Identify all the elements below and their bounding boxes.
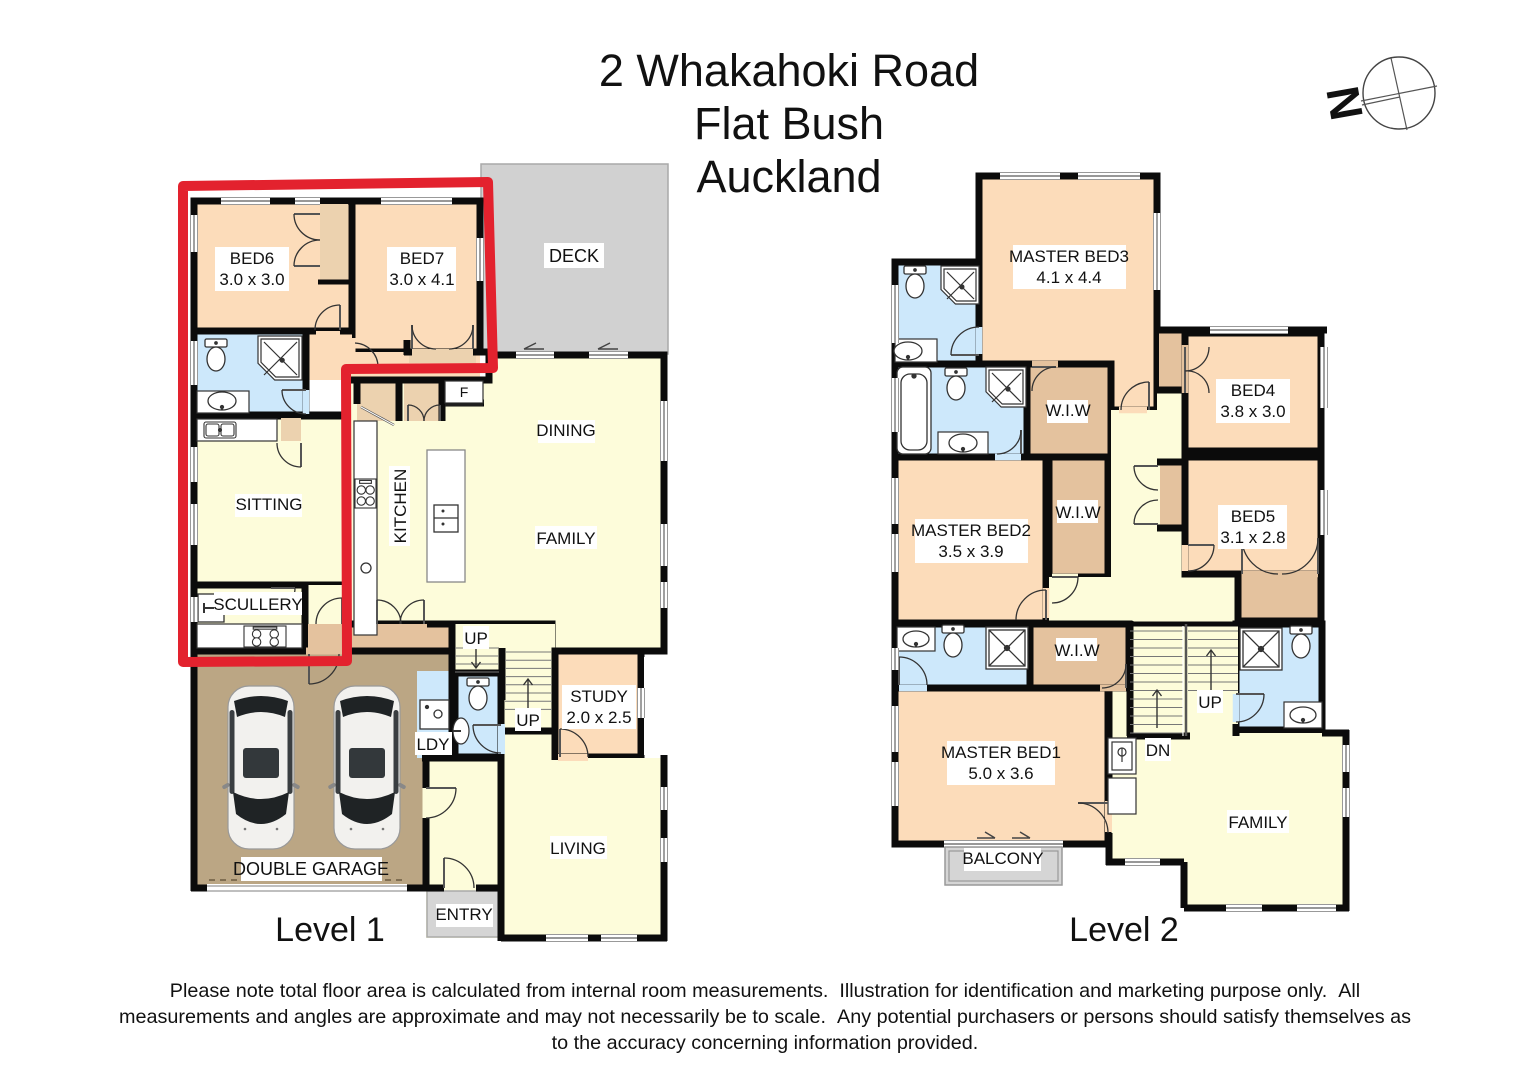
svg-text:KITCHEN: KITCHEN [391,469,410,544]
svg-text:BED7: BED7 [400,249,444,268]
svg-text:Auckland: Auckland [696,151,881,202]
svg-text:Please note total floor area i: Please note total floor area is calculat… [170,980,1360,1002]
svg-text:to the accuracy concerning inf: to the accuracy concerning information p… [552,1032,979,1054]
svg-text:UP: UP [516,711,540,730]
svg-text:FAMILY: FAMILY [536,529,595,548]
svg-text:DECK: DECK [549,246,599,266]
svg-text:5.0 x 3.6: 5.0 x 3.6 [968,764,1033,783]
svg-text:MASTER BED2: MASTER BED2 [911,521,1031,540]
svg-text:3.5 x 3.9: 3.5 x 3.9 [938,542,1003,561]
svg-text:Level 1: Level 1 [275,911,385,949]
svg-text:2 Whakahoki Road: 2 Whakahoki Road [599,45,979,96]
svg-text:measurements and angles are ap: measurements and angles are approximate … [119,1006,1411,1028]
svg-text:MASTER BED1: MASTER BED1 [941,743,1061,762]
svg-text:BED5: BED5 [1231,507,1275,526]
svg-text:W.I.W: W.I.W [1045,401,1090,420]
svg-text:3.8 x 3.0: 3.8 x 3.0 [1220,402,1285,421]
svg-text:BED6: BED6 [230,249,274,268]
svg-text:STUDY: STUDY [570,687,628,706]
svg-text:DN: DN [1146,741,1171,760]
svg-text:3.0 x 3.0: 3.0 x 3.0 [219,270,284,289]
svg-text:Level 2: Level 2 [1069,911,1179,949]
svg-text:MASTER BED3: MASTER BED3 [1009,247,1129,266]
svg-text:FAMILY: FAMILY [1228,813,1287,832]
svg-text:W.I.W: W.I.W [1054,641,1099,660]
svg-text:LIVING: LIVING [550,839,606,858]
svg-text:SITTING: SITTING [235,495,302,514]
svg-text:2.0 x 2.5: 2.0 x 2.5 [566,708,631,727]
svg-text:4.1 x 4.4: 4.1 x 4.4 [1036,268,1101,287]
svg-text:Flat Bush: Flat Bush [694,98,884,149]
svg-text:BED4: BED4 [1231,381,1275,400]
svg-text:3.1 x 2.8: 3.1 x 2.8 [1220,528,1285,547]
svg-text:F: F [460,384,469,400]
svg-text:LDY: LDY [416,735,449,754]
svg-text:SCULLERY: SCULLERY [213,595,302,614]
svg-text:UP: UP [464,629,488,648]
svg-text:W.I.W: W.I.W [1055,503,1100,522]
svg-text:BALCONY: BALCONY [962,849,1043,868]
svg-text:ENTRY: ENTRY [435,905,492,924]
svg-text:UP: UP [1198,693,1222,712]
svg-text:3.0 x 4.1: 3.0 x 4.1 [389,270,454,289]
svg-text:DOUBLE GARAGE: DOUBLE GARAGE [233,859,389,879]
svg-text:DINING: DINING [536,421,596,440]
